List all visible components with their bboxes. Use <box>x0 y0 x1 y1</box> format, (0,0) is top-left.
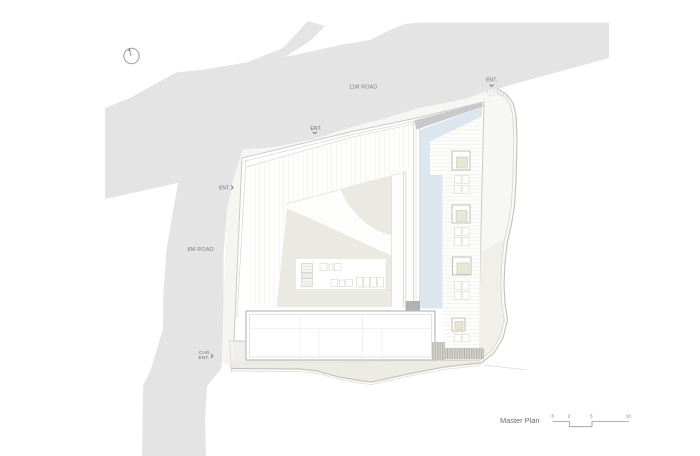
svg-text:ENT.: ENT. <box>486 78 497 84</box>
svg-text:ENT.: ENT. <box>219 186 230 192</box>
svg-text:ENT.: ENT. <box>311 126 322 132</box>
svg-text:10: 10 <box>626 414 632 419</box>
svg-text:8M ROAD: 8M ROAD <box>188 247 214 253</box>
svg-text:5: 5 <box>590 414 593 419</box>
svg-text:0: 0 <box>552 414 555 419</box>
svg-text:Master Plan: Master Plan <box>500 416 539 425</box>
svg-text:2: 2 <box>568 414 571 419</box>
svg-text:ENT.: ENT. <box>199 355 210 361</box>
svg-text:11M ROAD: 11M ROAD <box>349 85 377 91</box>
